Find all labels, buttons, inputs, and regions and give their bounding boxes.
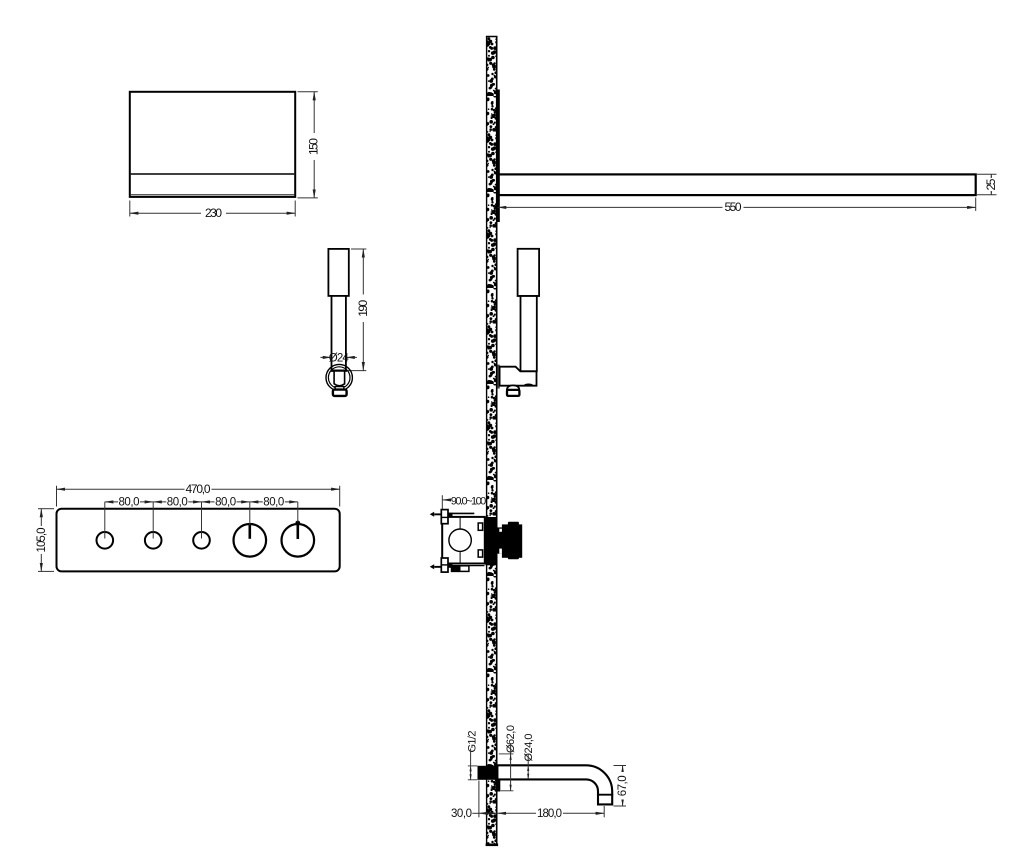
svg-text:470,0: 470,0 (186, 482, 211, 496)
svg-text:80,0: 80,0 (263, 497, 284, 509)
svg-text:67,0: 67,0 (617, 775, 629, 796)
svg-text:Ø62,0: Ø62,0 (505, 725, 517, 753)
svg-text:105,0: 105,0 (36, 528, 48, 553)
svg-text:90.0~100: 90.0~100 (451, 495, 487, 507)
svg-text:Ø24: Ø24 (329, 353, 350, 365)
svg-text:230: 230 (205, 206, 222, 220)
svg-text:25: 25 (984, 178, 998, 190)
svg-text:G1/2: G1/2 (466, 731, 478, 753)
svg-text:30,0: 30,0 (451, 808, 472, 820)
svg-text:180,0: 180,0 (537, 808, 562, 820)
svg-text:Ø24,0: Ø24,0 (523, 734, 535, 762)
svg-text:80,0: 80,0 (167, 497, 188, 509)
svg-text:550: 550 (725, 200, 742, 214)
svg-text:150: 150 (307, 138, 321, 155)
svg-text:80,0: 80,0 (215, 497, 236, 509)
svg-text:80,0: 80,0 (119, 497, 140, 509)
svg-text:190: 190 (356, 299, 370, 316)
